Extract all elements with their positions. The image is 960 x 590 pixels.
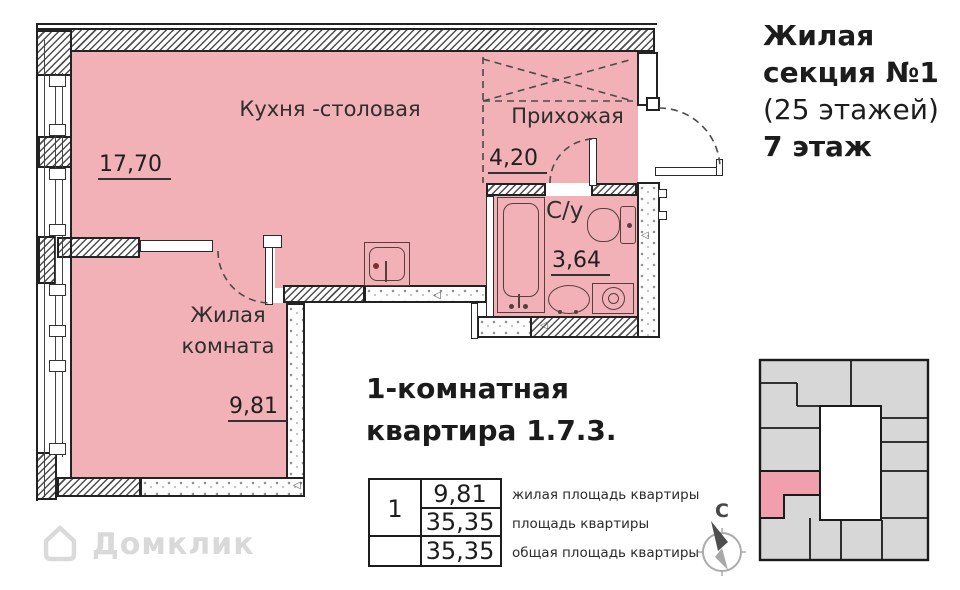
section-title-line3: (25 этажей) [763,91,939,128]
apartment-area-cell: 35,35 [420,509,500,535]
north-label: С [715,500,729,522]
section-title-line2: секция №1 [763,54,939,91]
room-living-area: 9,81 [228,394,287,422]
entrance-door-swing [659,108,720,169]
floor-plan-sheet: ◁ ◁ ◁ ◁ Кухня -столовая 17,70 Прихожая 4… [0,0,960,590]
area-table: 1 9,81 35,35 35,35 [368,478,502,567]
key-plan [756,358,932,564]
apartment-area-label: площадь квартиры [512,516,649,532]
watermark-text: Домклик [92,527,255,562]
room-bathroom-area: 3,64 [551,248,610,276]
total-area-cell: 35,35 [420,537,500,565]
room-living-label: Жилая комната [177,300,279,362]
title-block: Жилая секция №1 (25 этажей) 7 этаж [763,17,939,165]
apartment-heading-line1: 1-комнатная [366,372,569,405]
room-kitchen-area: 17,70 [98,152,171,180]
living-area-label: жилая площадь квартиры [512,487,699,503]
compass-needle-tail [715,548,728,570]
unit-number-cell: 1 [370,480,420,537]
room-kitchen-label: Кухня -столовая [230,97,430,121]
room-hallway-label: Прихожая [505,104,630,128]
watermark-logo-icon [36,516,84,566]
section-title-line1: Жилая [763,17,939,54]
room-hallway-area: 4,20 [488,146,547,174]
living-door-swing [218,251,270,303]
key-plan-courtyard [820,406,881,520]
section-title-line4: 7 этаж [763,128,939,165]
compass: С [692,490,756,586]
total-area-label: общая площадь квартиры [512,545,699,561]
bathroom-door-swing [550,139,594,183]
room-bathroom-label: С/у [546,198,583,224]
apartment-heading-line2: квартира 1.7.3. [366,414,617,447]
living-area-cell: 9,81 [420,480,500,507]
